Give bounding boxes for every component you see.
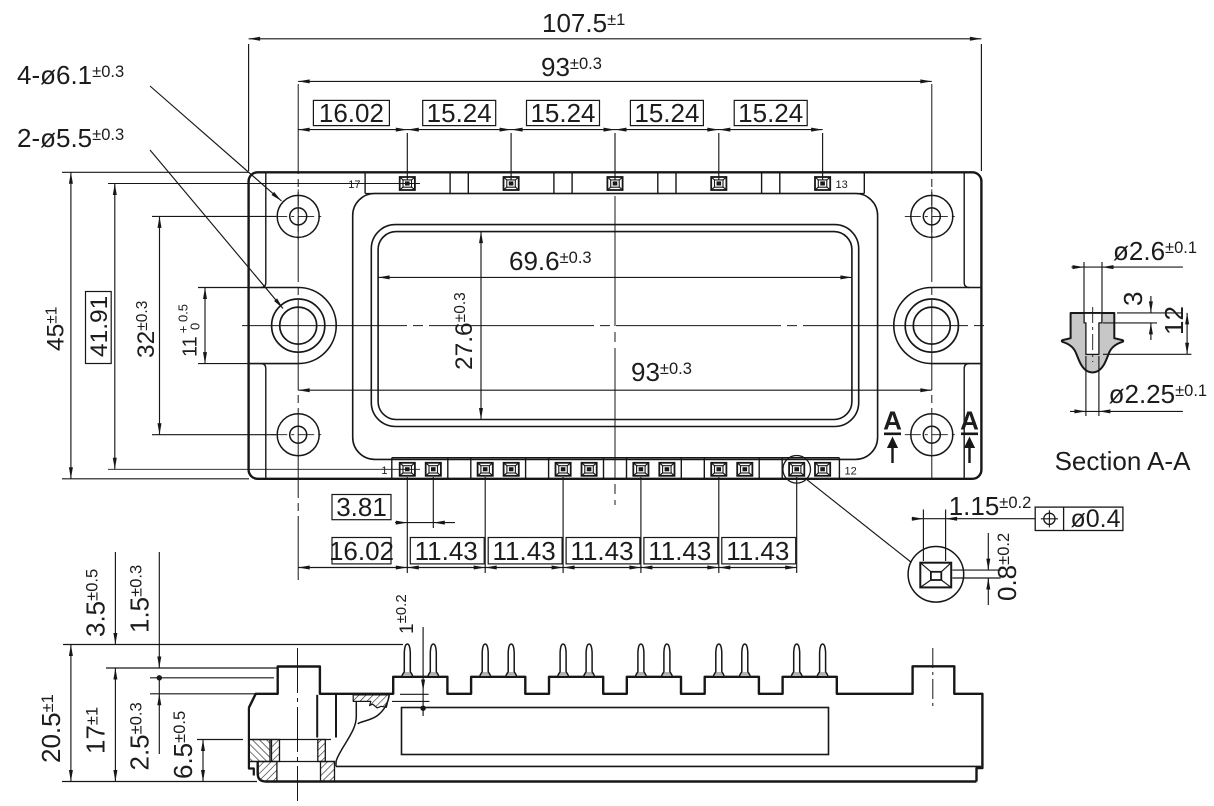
svg-text:A: A (960, 406, 979, 436)
svg-text:12: 12 (1159, 306, 1189, 335)
svg-text:15.24: 15.24 (634, 98, 699, 128)
svg-text:11.43: 11.43 (415, 536, 478, 566)
svg-text:3.81: 3.81 (336, 492, 387, 522)
svg-text:12: 12 (845, 466, 857, 478)
svg-text:15.24: 15.24 (738, 98, 803, 128)
svg-text:17: 17 (348, 179, 360, 191)
svg-text:13: 13 (836, 179, 848, 191)
svg-text:15.24: 15.24 (427, 98, 492, 128)
svg-text:ø0.4: ø0.4 (1071, 505, 1121, 533)
svg-text:16.02: 16.02 (319, 98, 384, 128)
svg-text:3: 3 (1118, 292, 1148, 306)
svg-text:A: A (883, 406, 902, 436)
svg-text:11.43: 11.43 (570, 536, 633, 566)
svg-text:1: 1 (381, 465, 387, 477)
svg-text:15.24: 15.24 (530, 98, 595, 128)
svg-text:16.02: 16.02 (329, 536, 394, 566)
svg-text:Section A-A: Section A-A (1055, 446, 1192, 476)
svg-text:41.91: 41.91 (86, 296, 113, 357)
svg-text:11.43: 11.43 (493, 536, 556, 566)
svg-text:11.43: 11.43 (726, 536, 789, 566)
svg-text:11.43: 11.43 (648, 536, 711, 566)
